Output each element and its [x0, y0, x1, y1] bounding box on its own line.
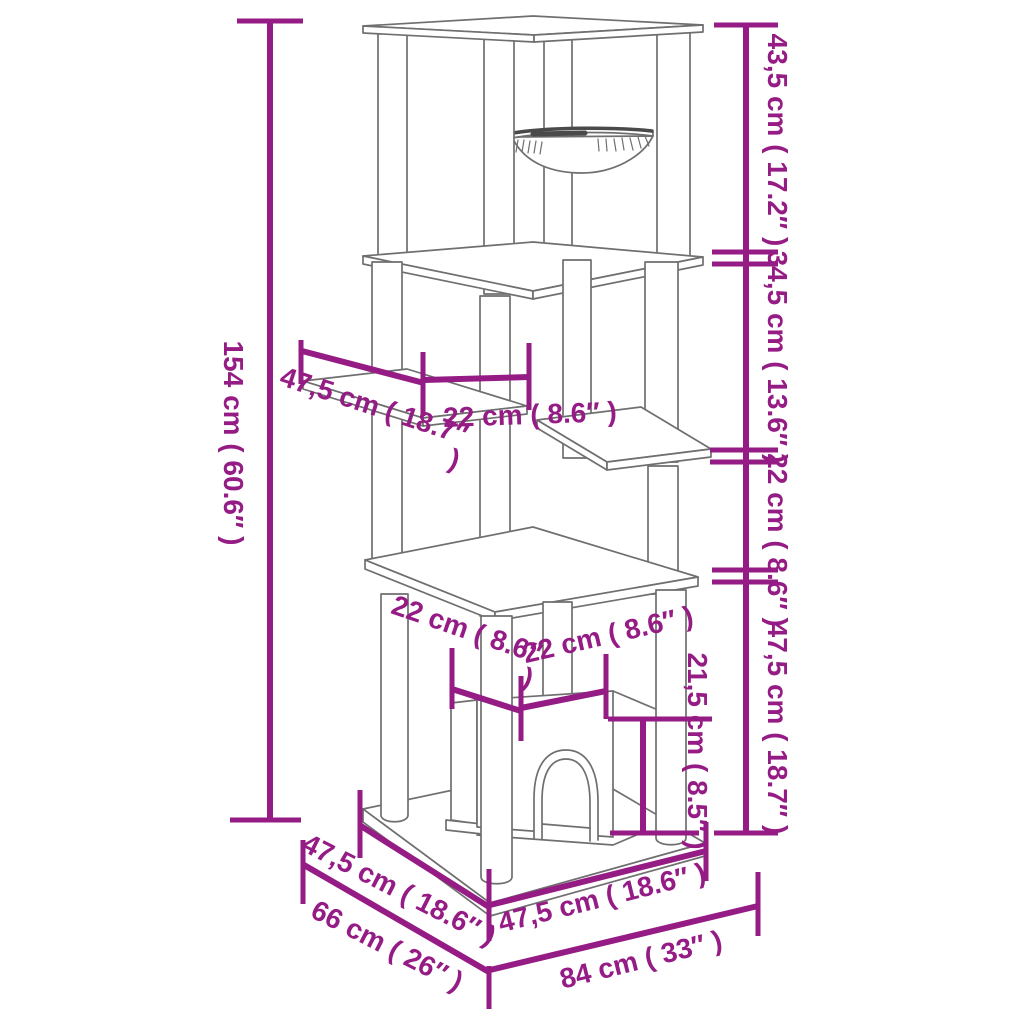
hammock	[512, 128, 653, 173]
dim-label-section-top: 43,5 cm ( 17.2″ )	[763, 34, 791, 247]
dim-label-total-height: 154 cm ( 60.6″ )	[219, 341, 247, 546]
dim-label-section-bottom: 47,5 cm ( 18.7″ )	[763, 622, 791, 835]
dim-label-house-height: 21,5 cm ( 8.5″ )	[683, 652, 711, 849]
hammock-mount	[533, 133, 585, 134]
dim-label-section-lower-mid: 22 cm ( 8.6″ )	[763, 453, 791, 627]
diagram-canvas: 154 cm ( 60.6″ ) 43,5 cm ( 17.2″ ) 34,5 …	[0, 0, 1024, 1024]
dim-label-section-upper-mid: 34,5 cm ( 13.6″ )	[763, 251, 791, 464]
dimension-diagram-svg	[0, 0, 1024, 1024]
dim-label-perch-width: 22 cm ( 8.6″ )	[443, 398, 618, 432]
top-board	[363, 16, 703, 42]
cat-tree-drawing	[303, 16, 711, 916]
